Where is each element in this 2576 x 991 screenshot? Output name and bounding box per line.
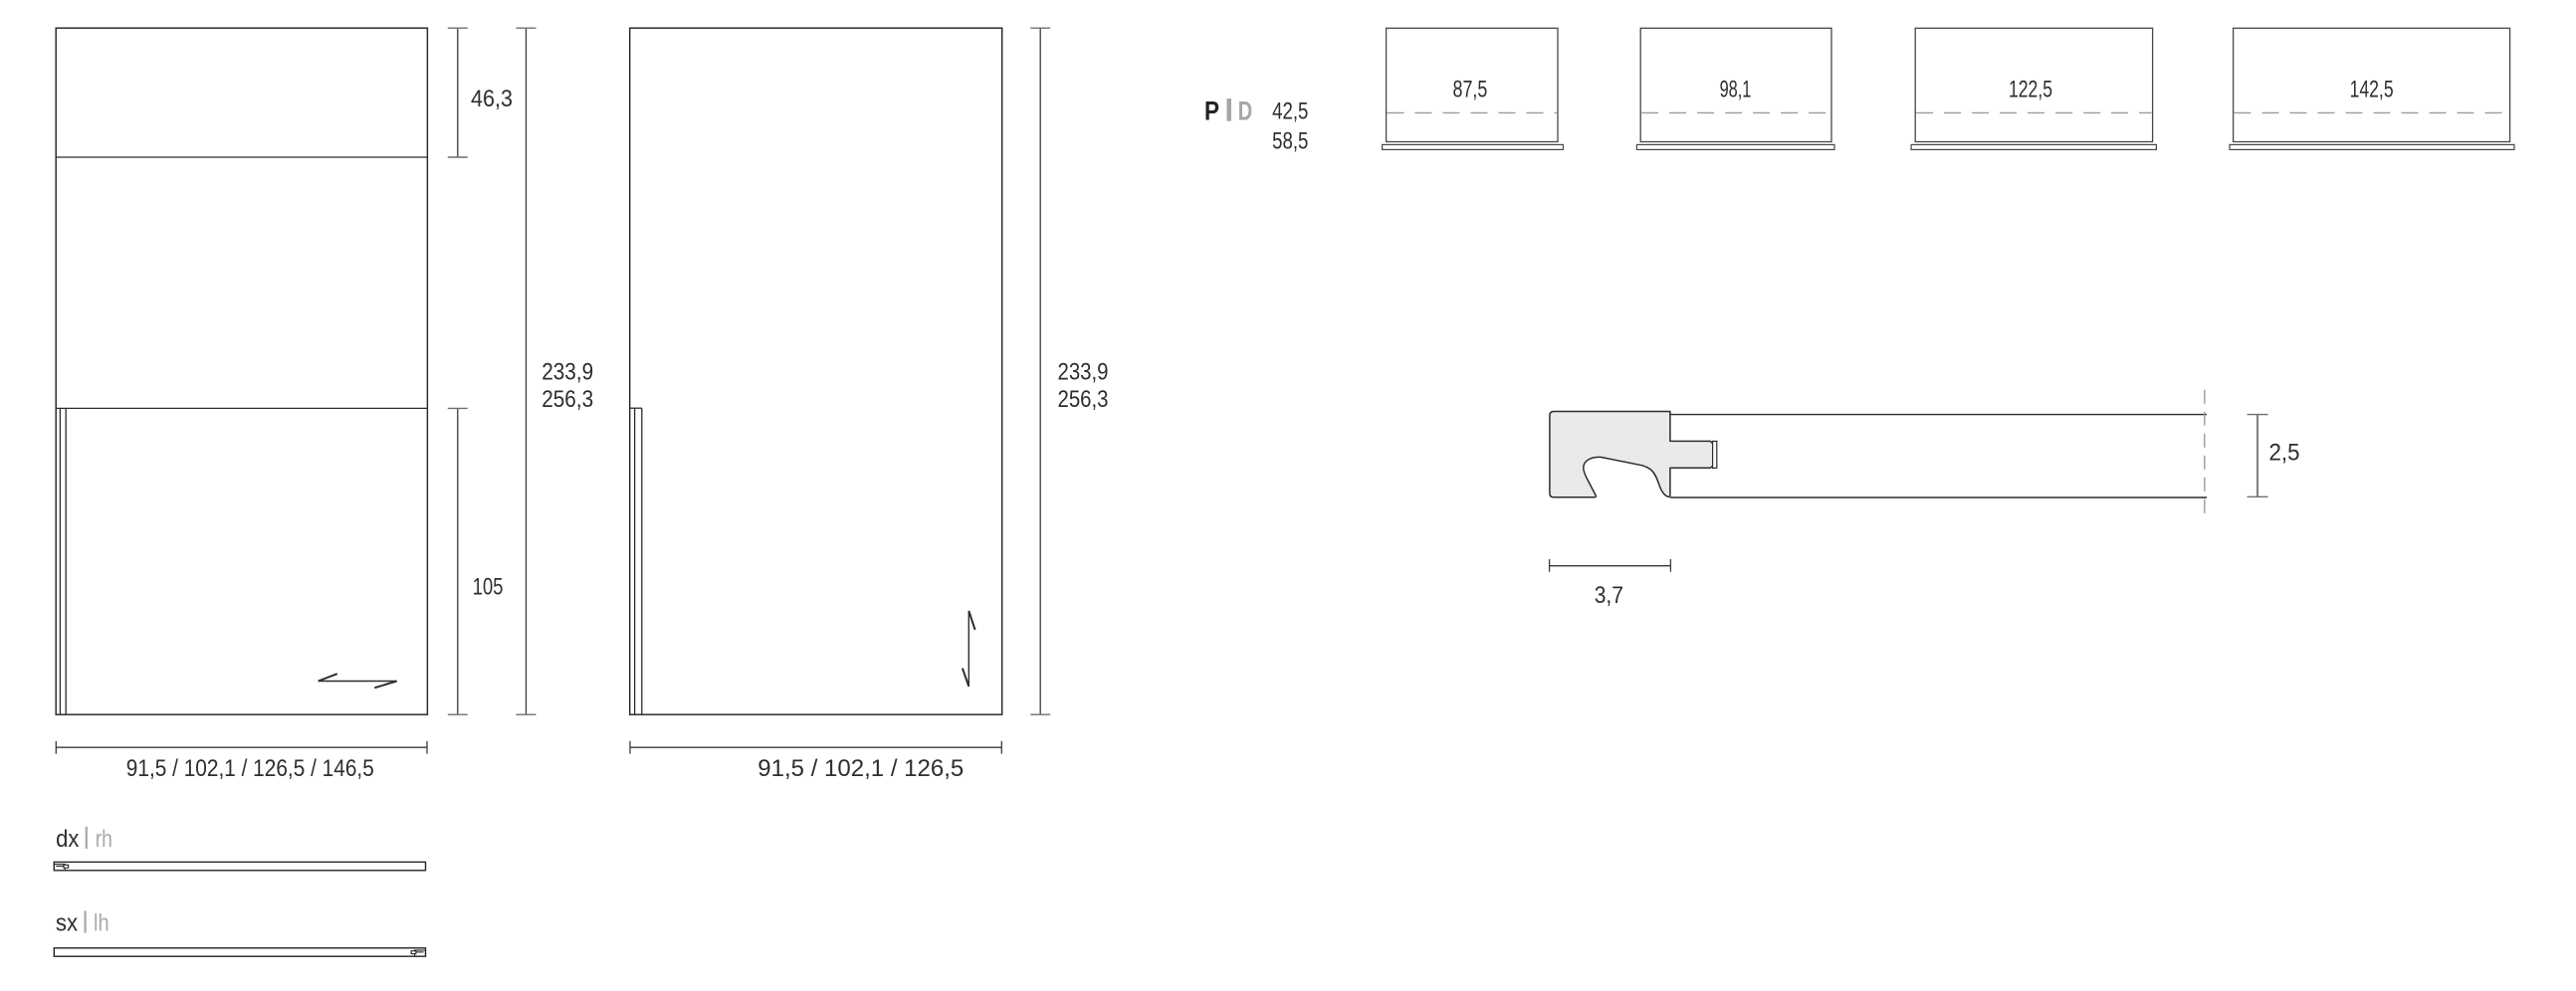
svg-text:42,5: 42,5	[1272, 98, 1308, 124]
svg-text:105: 105	[473, 574, 504, 601]
svg-text:lh: lh	[94, 909, 109, 936]
svg-text:rh: rh	[96, 826, 112, 853]
svg-text:46,3: 46,3	[471, 86, 513, 112]
svg-text:98,1: 98,1	[1720, 76, 1752, 102]
svg-text:91,5 / 102,1 / 126,5 / 146,5: 91,5 / 102,1 / 126,5 / 146,5	[126, 755, 374, 782]
svg-text:3,7: 3,7	[1595, 582, 1623, 609]
svg-text:P: P	[1204, 97, 1219, 126]
svg-text:58,5: 58,5	[1272, 128, 1308, 155]
svg-text:122,5: 122,5	[2009, 76, 2052, 102]
svg-text:2,5: 2,5	[2269, 440, 2300, 467]
svg-text:87,5: 87,5	[1453, 76, 1488, 102]
svg-text:D: D	[1238, 97, 1253, 126]
svg-text:sx: sx	[56, 909, 78, 936]
svg-text:dx: dx	[56, 826, 79, 853]
svg-text:142,5: 142,5	[2350, 76, 2394, 102]
svg-text:256,3: 256,3	[541, 386, 593, 413]
svg-text:91,5 / 102,1 / 126,5: 91,5 / 102,1 / 126,5	[757, 755, 964, 782]
svg-text:233,9: 233,9	[541, 358, 593, 385]
svg-text:233,9: 233,9	[1058, 358, 1109, 385]
svg-text:256,3: 256,3	[1058, 386, 1109, 413]
